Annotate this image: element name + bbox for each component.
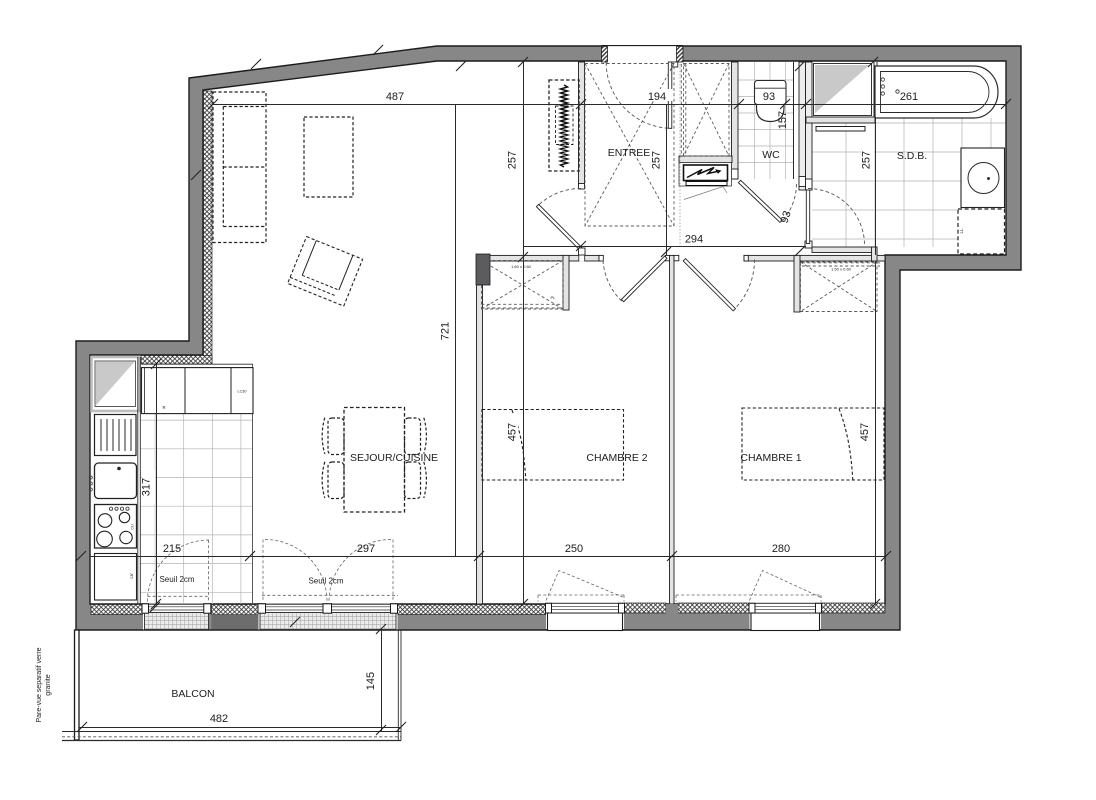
svg-text:1.60 x 0.60: 1.60 x 0.60: [511, 264, 532, 269]
svg-text:S.D.B.: S.D.B.: [897, 150, 927, 162]
svg-text:PL: PL: [551, 295, 557, 300]
svg-text:Seuil 2cm: Seuil 2cm: [159, 575, 194, 584]
svg-text:CHAMBRE 2: CHAMBRE 2: [586, 452, 647, 464]
svg-text:LC30: LC30: [237, 390, 246, 394]
svg-text:93: 93: [763, 91, 775, 103]
svg-text:WC: WC: [762, 149, 780, 161]
svg-text:LV: LV: [129, 573, 134, 578]
svg-text:250: 250: [565, 543, 583, 555]
svg-text:487: 487: [386, 91, 404, 103]
svg-text:257: 257: [651, 151, 663, 169]
svg-text:721: 721: [440, 322, 452, 340]
svg-text:457: 457: [859, 423, 871, 441]
svg-text:CHAMBRE 1: CHAMBRE 1: [740, 452, 801, 464]
svg-text:257: 257: [507, 151, 519, 169]
svg-text:297: 297: [357, 543, 375, 555]
svg-text:BALCON: BALCON: [171, 688, 214, 700]
svg-text:SEJOUR/CUISINE: SEJOUR/CUISINE: [350, 452, 438, 464]
svg-text:317: 317: [141, 478, 153, 496]
svg-text:CU: CU: [131, 524, 135, 530]
svg-text:194: 194: [648, 91, 666, 103]
svg-text:1.50 x 0.60: 1.50 x 0.60: [831, 267, 852, 272]
svg-text:Pare-vue separatif verre: Pare-vue separatif verre: [36, 647, 43, 722]
svg-text:157: 157: [777, 111, 789, 129]
svg-text:261: 261: [900, 91, 918, 103]
svg-text:457: 457: [507, 423, 519, 441]
svg-text:482: 482: [210, 713, 228, 725]
svg-text:granite: granite: [45, 674, 52, 696]
svg-text:294: 294: [685, 234, 703, 246]
svg-text:257: 257: [861, 151, 873, 169]
svg-text:LL: LL: [959, 228, 964, 234]
svg-text:R: R: [162, 405, 165, 410]
svg-text:145: 145: [365, 672, 377, 690]
svg-text:Seuil 2cm: Seuil 2cm: [308, 577, 343, 586]
svg-text:215: 215: [163, 543, 181, 555]
svg-text:ENTREE: ENTREE: [608, 147, 651, 159]
svg-text:280: 280: [772, 543, 790, 555]
